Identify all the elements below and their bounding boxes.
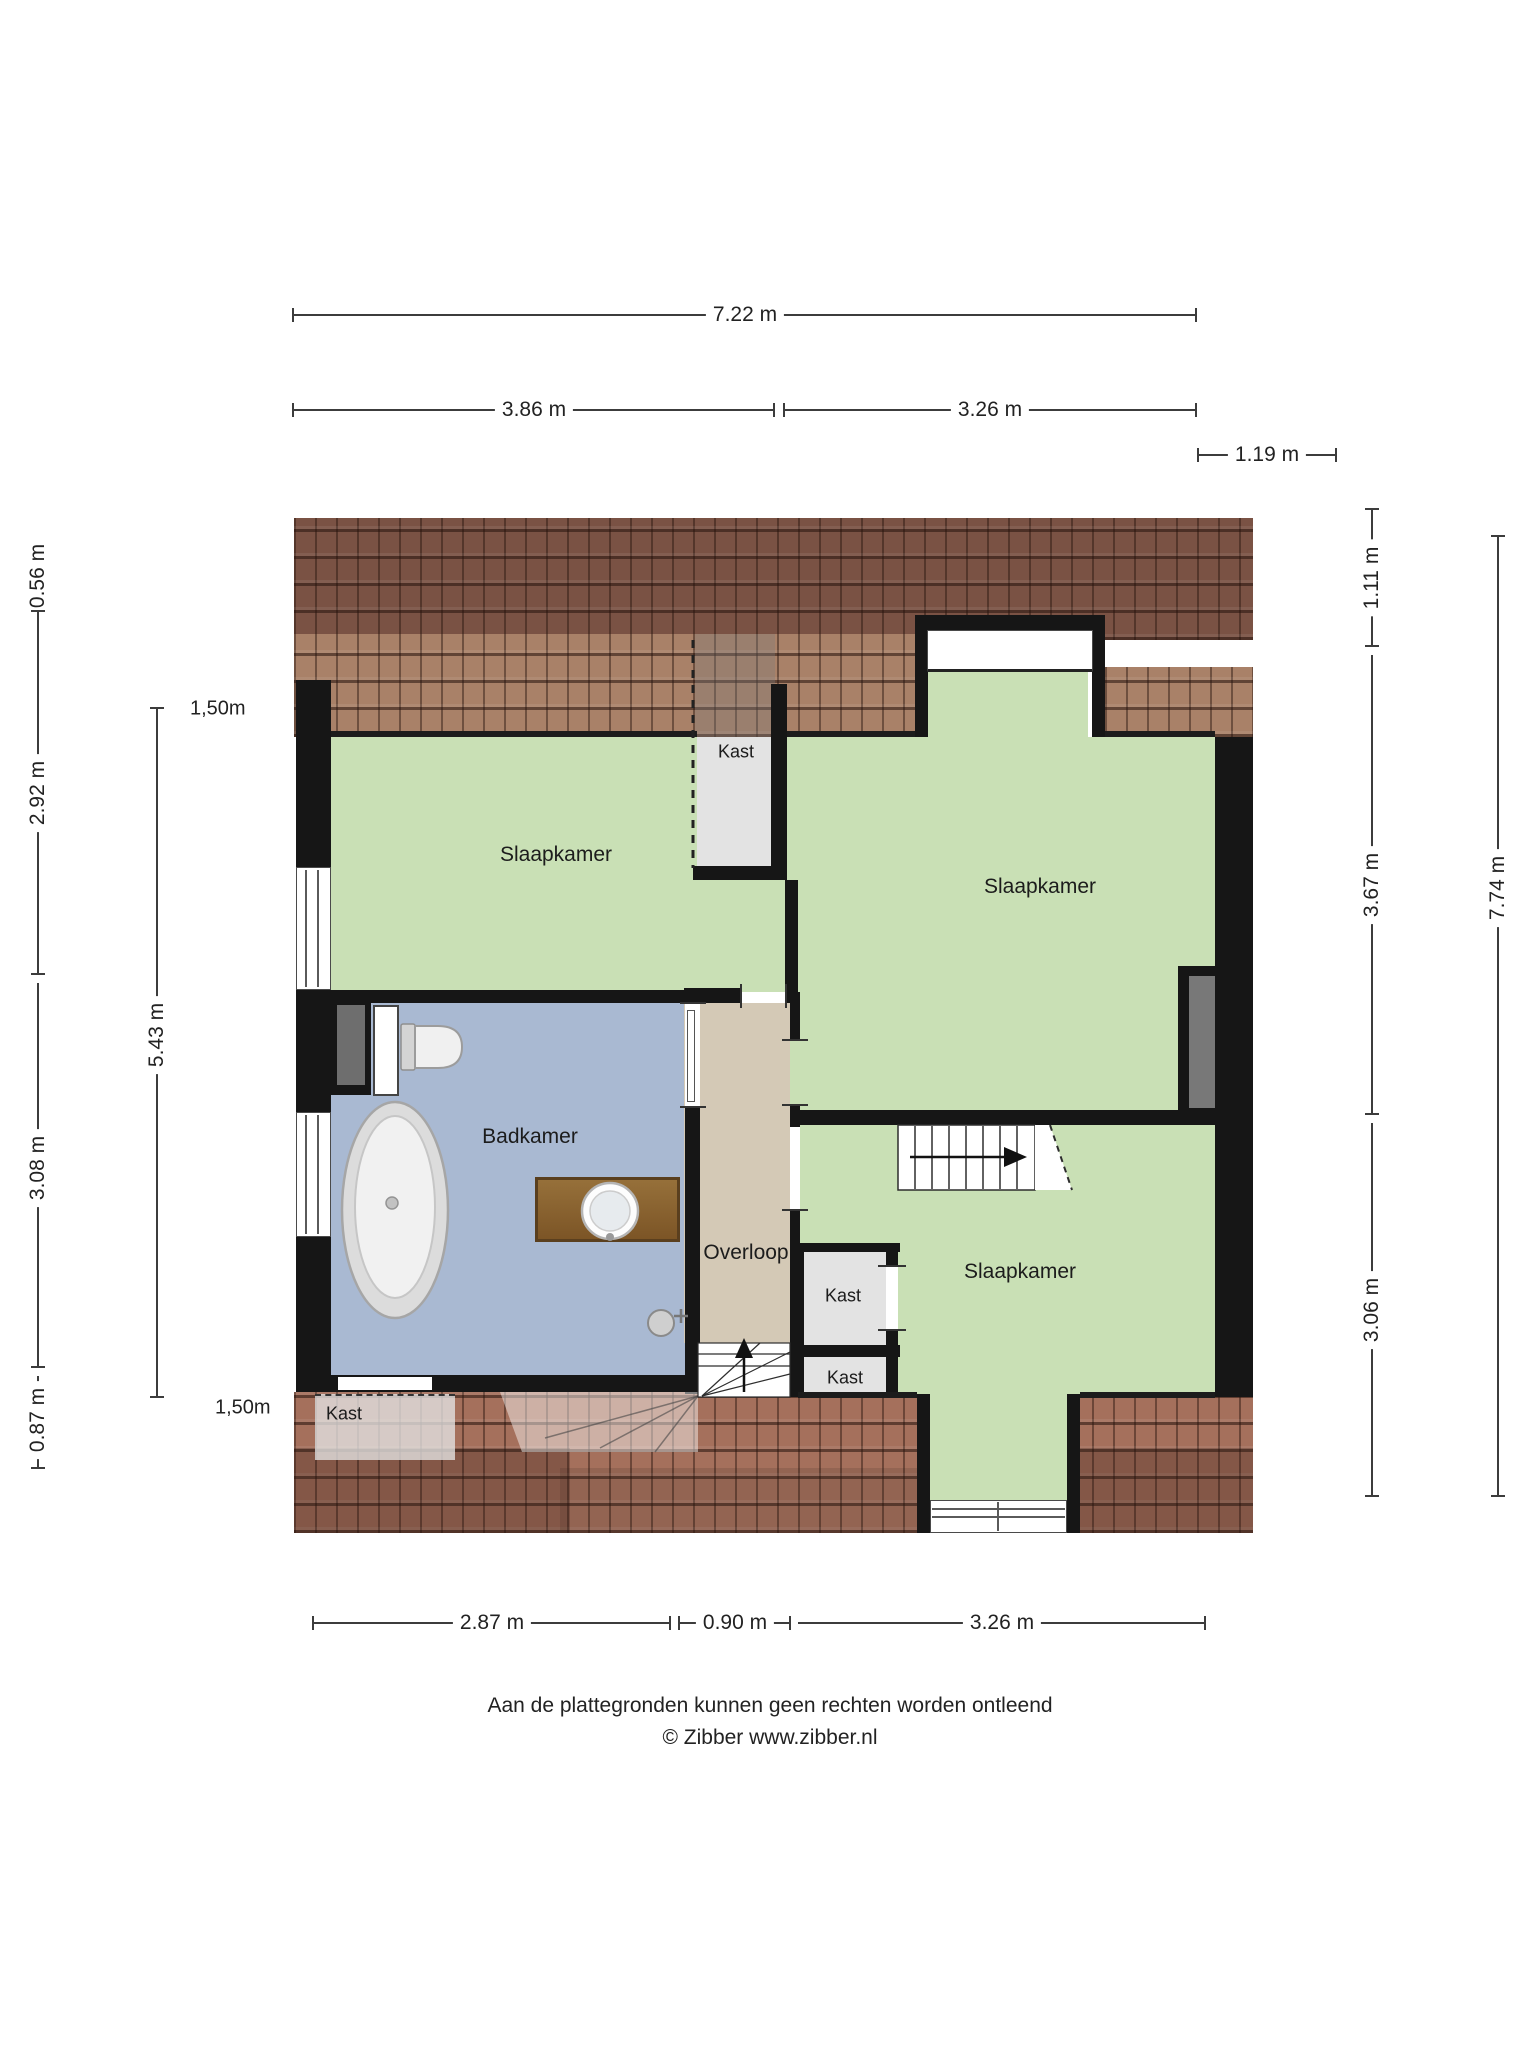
dim-tick	[292, 308, 294, 322]
dim-tick	[31, 1366, 45, 1368]
toilet-icon	[401, 1024, 462, 1070]
dim-tick	[1365, 645, 1379, 647]
dim-tick	[150, 707, 164, 709]
dim-tick	[1195, 308, 1197, 322]
dim-tick	[1335, 448, 1337, 462]
dim-label: 1.19 m	[1228, 442, 1306, 468]
dim-tick	[31, 973, 45, 975]
dim-tick	[1204, 1616, 1206, 1630]
room-label-kast-lower: Kast	[827, 1368, 863, 1389]
dim-label: 2.92 m	[25, 754, 51, 832]
dim-tick	[1491, 535, 1505, 537]
room-label-slaapkamer-bottomright: Slaapkamer	[964, 1260, 1076, 1284]
copyright-text: © Zibber www.zibber.nl	[662, 1726, 877, 1750]
room-label-badkamer: Badkamer	[482, 1125, 578, 1149]
room-label-overloop: Overloop	[703, 1241, 788, 1265]
stairs-upper-icon	[898, 1125, 1072, 1190]
dim-label: 0.87 m	[25, 1381, 51, 1459]
room-label-kast-mid: Kast	[825, 1286, 861, 1307]
room-label-kast-bottomleft: Kast	[326, 1404, 362, 1425]
dim-tick	[1197, 448, 1199, 462]
room-label-slaapkamer-topleft: Slaapkamer	[500, 843, 612, 867]
dim-tick	[783, 403, 785, 417]
dim-label: 0.90 m	[696, 1610, 774, 1636]
dim-tick	[31, 1467, 45, 1469]
dim-label: 5.43 m	[144, 996, 170, 1074]
headroom-label-top: 1,50m	[190, 698, 246, 721]
dim-label: 1.11 m	[1359, 540, 1385, 617]
dim-tick	[669, 1616, 671, 1630]
dim-tick	[678, 1616, 680, 1630]
dim-line	[1497, 535, 1499, 1497]
dim-tick	[1195, 403, 1197, 417]
disclaimer-text: Aan de plattegronden kunnen geen rechten…	[487, 1694, 1052, 1718]
dim-tick	[31, 610, 45, 612]
dim-label: 7.22 m	[706, 302, 784, 328]
dim-label: 3.67 m	[1359, 846, 1385, 924]
dim-tick	[1365, 1495, 1379, 1497]
dim-label: 2.87 m	[453, 1610, 531, 1636]
dim-tick	[150, 1396, 164, 1398]
dim-label: 3.06 m	[1359, 1271, 1385, 1349]
door-tick-marks	[680, 984, 906, 1330]
bathtub-icon	[342, 1102, 448, 1318]
dim-tick	[292, 403, 294, 417]
room-label-kast-top: Kast	[718, 742, 754, 763]
dim-tick	[1491, 1495, 1505, 1497]
dim-label: 3.86 m	[495, 397, 573, 423]
fountain-icon	[648, 1309, 688, 1336]
headroom-label-bottom: 1,50m	[215, 1397, 271, 1420]
stairs-lower-icon	[500, 1338, 790, 1452]
dim-label: 3.08 m	[25, 1129, 51, 1207]
dim-label: 3.26 m	[963, 1610, 1041, 1636]
dim-tick	[773, 403, 775, 417]
dim-label: 3.26 m	[951, 397, 1029, 423]
dim-label: 0.56 m	[25, 537, 51, 615]
dim-label: 7.74 m	[1485, 849, 1511, 927]
dim-tick	[1365, 508, 1379, 510]
room-label-slaapkamer-topright: Slaapkamer	[984, 875, 1096, 899]
floorplan-page: { "rooms": { "slaapkamer_topleft": {"lab…	[0, 0, 1536, 2048]
dim-tick	[789, 1616, 791, 1630]
sink-icon	[582, 1183, 638, 1241]
dim-tick	[312, 1616, 314, 1630]
dim-tick	[1365, 1113, 1379, 1115]
